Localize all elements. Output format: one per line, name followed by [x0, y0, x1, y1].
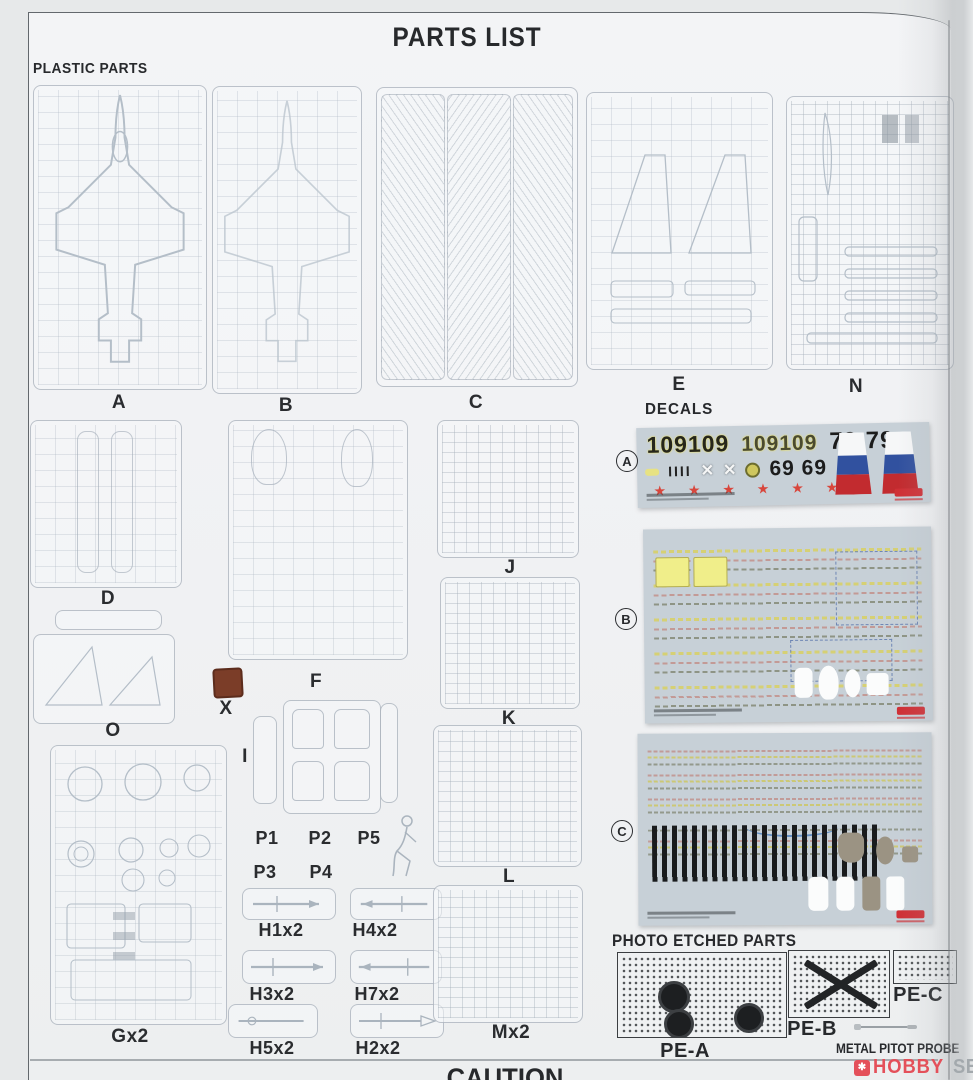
metal-pitot-probe-art: [860, 1026, 914, 1028]
decal-round-emblem: [745, 462, 760, 477]
canopy-part: [341, 429, 373, 487]
sprue-p-strip: [380, 703, 398, 803]
sprue-h1: [242, 888, 336, 920]
sprue-h7: [350, 950, 442, 984]
sprue-e-label: E: [672, 374, 685, 396]
white-shape-decal: [794, 668, 812, 698]
missiles-art: [787, 97, 953, 369]
label-p5: P5: [357, 828, 380, 849]
tan-shape-decal: [876, 836, 894, 864]
tan-shape-decal: [838, 833, 864, 863]
label-h1x2: H1x2: [258, 920, 303, 941]
decal-marker-a: A: [616, 450, 638, 472]
decal-sheet-a: 109109 109109 79 79 IIII ✕ ✕ 69 69 ★ ★ ★…: [636, 422, 931, 508]
pe-c-label: PE-C: [893, 984, 943, 1007]
sprue-k: [440, 577, 580, 709]
pilot-figure-art: [383, 812, 425, 884]
decal-number: 69 69: [769, 456, 827, 481]
ejection-seat-part: [334, 761, 370, 801]
sprue-b-label: B: [279, 395, 293, 417]
label-p1: P1: [255, 828, 278, 849]
pe-fret-c: [893, 950, 957, 984]
wing-panel: [381, 94, 445, 380]
wheels-art: [51, 746, 226, 1024]
decal-marker-a-letter: A: [622, 454, 631, 469]
missile-art: [243, 889, 335, 919]
decal-fineprint: [654, 708, 742, 718]
caution-heading: CAUTION: [447, 1063, 564, 1080]
wing-panel: [513, 94, 573, 380]
pe-b-label: PE-B: [787, 1018, 837, 1041]
sprue-n-missiles: [786, 96, 954, 370]
photo-etched-heading: PHOTO ETCHED PARTS: [612, 931, 796, 951]
sprue-l-label: L: [503, 866, 515, 888]
canopy-part: [251, 429, 287, 485]
label-p4: P4: [309, 862, 332, 883]
sprue-o-fins: [33, 634, 175, 724]
decal-brand-logo: [896, 910, 924, 918]
clear-part-swatch-x: [212, 667, 244, 699]
sprue-b-lower-fuselage: [212, 86, 362, 394]
scanned-instruction-page: PARTS LIST PLASTIC PARTS: [0, 0, 973, 1080]
white-shape-decal: [886, 876, 904, 910]
decal-fin-flashes: [833, 431, 918, 495]
sprue-d-booms: [30, 420, 182, 588]
missile-art: [351, 1005, 443, 1037]
sprue-l: [433, 725, 582, 867]
pe-fret-b: [788, 950, 890, 1018]
label-p3: P3: [253, 862, 276, 883]
fins-art: [34, 635, 174, 723]
sprue-h4: [350, 888, 442, 920]
stencil-field: [648, 742, 922, 817]
plastic-parts-heading: PLASTIC PARTS: [33, 60, 148, 77]
tan-shape-decal: [862, 877, 880, 911]
watermark-search-text: SEARCH: [953, 1056, 973, 1079]
dashed-guide-box: [835, 551, 918, 626]
russian-flag-flash: [880, 431, 918, 494]
jet-bottomview-art: [213, 87, 361, 393]
sprue-j: [437, 420, 579, 558]
sprue-g-label: Gx2: [111, 1026, 148, 1048]
decal-brand-logo: [897, 707, 925, 715]
wing-panel: [447, 94, 511, 380]
decal-fineprint: [647, 911, 735, 920]
sprue-p-seats: [283, 700, 381, 814]
sprue-o-label: O: [105, 720, 120, 742]
ejection-seat-part: [334, 709, 370, 749]
label-h2x2: H2x2: [355, 1038, 400, 1059]
sprue-e-tails: [586, 92, 773, 370]
hobby-search-watermark: ✱ HOBBY SEARCH: [854, 1056, 973, 1079]
tail-fins-art: [587, 93, 772, 369]
sprue-h3: [242, 950, 336, 984]
page-title: PARTS LIST: [393, 22, 542, 53]
sprue-k-label: K: [502, 708, 516, 730]
sprue-h5: [228, 1004, 318, 1038]
decal-fineprint: [647, 492, 735, 503]
swatch-x-label: X: [219, 698, 232, 720]
sprue-g-wheels: [50, 745, 227, 1025]
sprue-c-wings: [376, 87, 578, 387]
sprue-i-strip: [253, 716, 277, 804]
pe-lens-circle: [734, 1003, 764, 1033]
sprue-i-label: I: [242, 746, 248, 768]
decal-cross-marking: ✕: [723, 460, 737, 480]
sprue-f-cockpit: [228, 420, 408, 660]
sprue-h2: [350, 1004, 444, 1038]
pe-lens-circle: [664, 1009, 694, 1038]
white-shape-decal: [867, 673, 889, 695]
decal-marker-c-letter: C: [617, 824, 626, 839]
missile-art: [243, 951, 335, 983]
decal-marker-c: C: [611, 820, 633, 842]
tail-boom-part: [77, 431, 99, 573]
decal-sheet-b-stencils: [643, 526, 933, 723]
white-shape-decal: [844, 669, 860, 697]
sprue-a-label: A: [112, 392, 126, 414]
label-h3x2: H3x2: [249, 984, 294, 1005]
metal-pitot-label: METAL PITOT PROBE: [836, 1041, 959, 1056]
sprue-a-upper-fuselage: [33, 85, 207, 390]
decal-brand-logo: [895, 488, 923, 497]
hobby-search-logo-icon: ✱: [854, 1060, 870, 1076]
white-shape-decal: [818, 665, 838, 699]
sprue-m: [433, 885, 583, 1023]
sprue-o-strip: [55, 610, 162, 630]
russian-flag-flash: [833, 432, 871, 495]
sprue-f-label: F: [310, 671, 322, 693]
tail-boom-part: [111, 431, 133, 573]
decal-number: 109109: [646, 430, 729, 459]
sprue-n-label: N: [849, 376, 863, 398]
sprue-c-label: C: [469, 392, 483, 414]
yellow-panel-decal: [655, 557, 689, 587]
missile-art: [351, 951, 441, 983]
decal-number: 109109: [741, 431, 818, 457]
label-h4x2: H4x2: [352, 920, 397, 941]
decal-marker-b: B: [615, 608, 637, 630]
watermark-hobby-text: HOBBY: [873, 1056, 944, 1079]
section-divider: [30, 1059, 938, 1061]
decals-heading: DECALS: [645, 401, 713, 419]
missile-art: [351, 889, 441, 919]
yellow-panel-decal: [693, 557, 727, 587]
label-p2: P2: [308, 828, 331, 849]
label-h5x2: H5x2: [249, 1038, 294, 1059]
ejection-seat-part: [292, 709, 324, 749]
ejection-seat-part: [292, 761, 324, 801]
white-shape-decal: [808, 877, 828, 911]
missile-art: [229, 1005, 317, 1037]
tan-shape-decal: [902, 846, 918, 862]
decal-emblem-blob: [645, 468, 659, 475]
jet-topview-art: [34, 86, 206, 389]
decal-sheet-c-stencils: [637, 732, 932, 926]
pe-lens-circle: [658, 981, 690, 1013]
sprue-m-label: Mx2: [492, 1022, 530, 1044]
decal-marker-b-letter: B: [621, 612, 630, 627]
white-shape-decal: [836, 877, 854, 911]
decal-cross-marking: ✕: [700, 460, 714, 480]
sprue-j-label: J: [504, 557, 515, 579]
decal-tick-marks: IIII: [668, 463, 692, 479]
pe-fret-a: [617, 952, 787, 1038]
sprue-d-label: D: [101, 588, 115, 610]
label-h7x2: H7x2: [354, 984, 399, 1005]
